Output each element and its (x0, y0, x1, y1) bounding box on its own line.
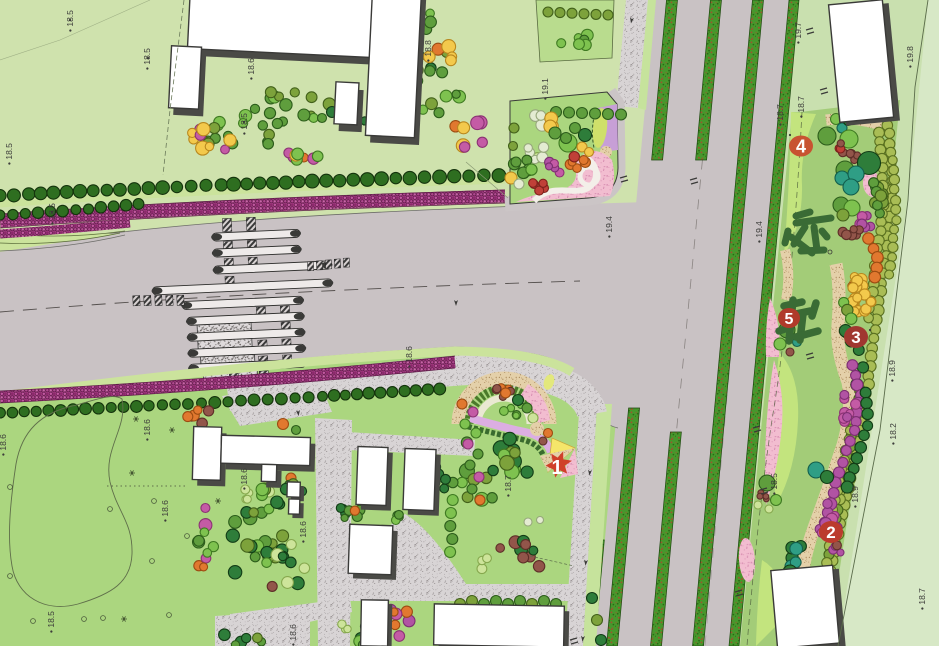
svg-text:• 18.5: • 18.5 (142, 48, 152, 70)
svg-text:• 18.9: • 18.9 (850, 486, 860, 508)
svg-text:• 18.6: • 18.6 (160, 500, 170, 522)
svg-text:2: 2 (826, 523, 835, 542)
svg-text:• 18.5: • 18.5 (47, 203, 57, 225)
svg-text:• 19.8: • 19.8 (905, 46, 915, 68)
svg-text:• 18.6: • 18.6 (246, 58, 256, 80)
svg-text:• 18.5: • 18.5 (46, 611, 56, 633)
svg-text:• 19.7: • 19.7 (793, 22, 803, 44)
svg-text:• 19.4: • 19.4 (754, 221, 764, 243)
svg-text:• 18.9: • 18.9 (887, 360, 897, 382)
svg-text:4: 4 (796, 136, 806, 156)
svg-text:3: 3 (851, 328, 860, 347)
svg-text:• 18.6: • 18.6 (404, 346, 414, 368)
svg-text:• 19.1: • 19.1 (540, 78, 550, 100)
svg-text:• 18.7: • 18.7 (503, 475, 513, 497)
svg-text:1: 1 (551, 457, 562, 479)
svg-text:• 18.6: • 18.6 (288, 624, 298, 646)
svg-text:• 18.5: • 18.5 (769, 473, 779, 495)
svg-text:5: 5 (785, 311, 794, 328)
svg-text:• 18.6: • 18.6 (142, 419, 152, 441)
svg-text:• 18.5: • 18.5 (4, 143, 14, 165)
svg-text:• 18.6: • 18.6 (0, 434, 8, 456)
svg-text:• 18.2: • 18.2 (888, 423, 898, 445)
svg-text:• 18.7: • 18.7 (917, 588, 927, 610)
svg-text:• 19.4: • 19.4 (604, 216, 614, 238)
svg-text:• 18.6: • 18.6 (239, 468, 249, 490)
svg-text:• 18.8: • 18.8 (423, 40, 433, 62)
svg-text:• 18.7: • 18.7 (796, 96, 806, 118)
svg-text:• 18.7: • 18.7 (775, 104, 785, 126)
svg-text:• 18.6: • 18.6 (298, 521, 308, 543)
svg-text:• 18.5: • 18.5 (239, 113, 249, 135)
